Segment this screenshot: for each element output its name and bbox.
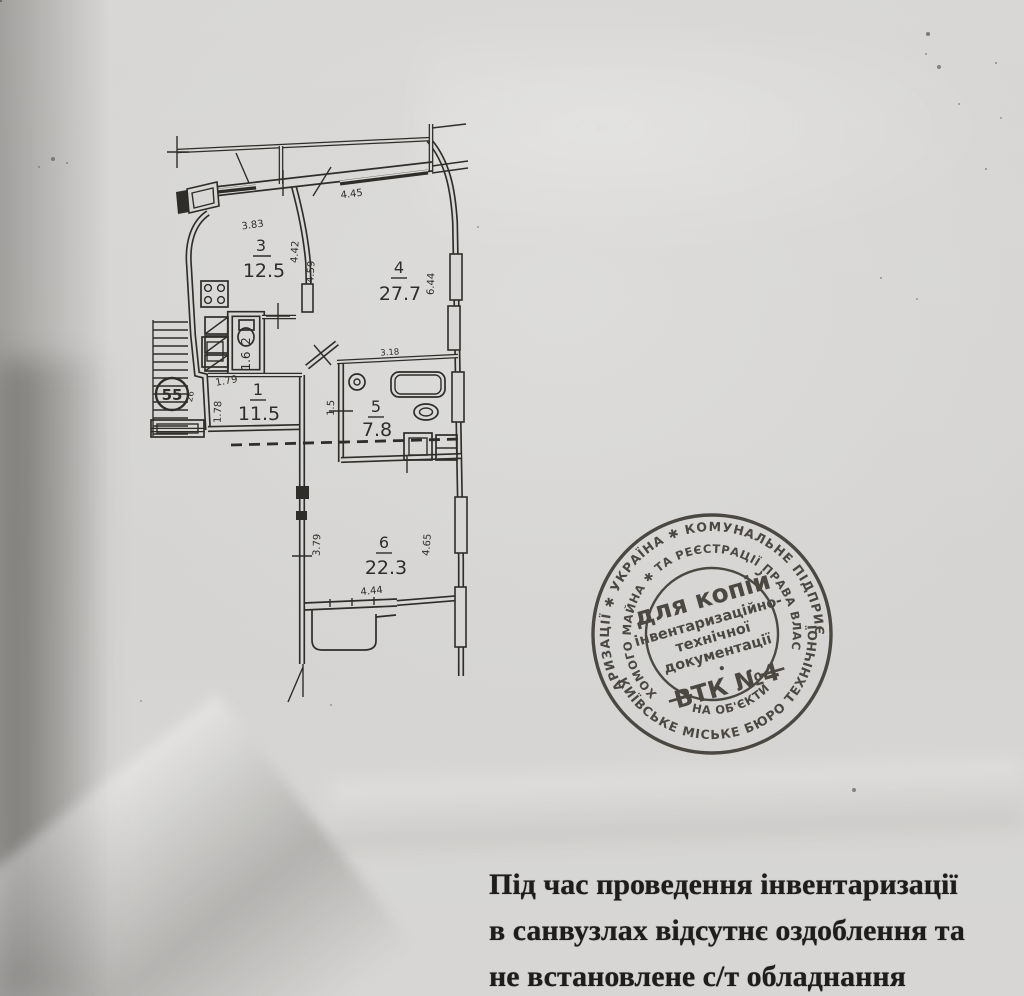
inventory-note: Під час проведення інвентаризації в санв… bbox=[489, 862, 965, 996]
scan-shadow-left-lower bbox=[0, 360, 150, 996]
note-line-3: не встановлене с/т обладнання bbox=[489, 954, 965, 996]
closet-icon bbox=[205, 317, 228, 371]
dim-top-wall: 4.45 bbox=[340, 188, 363, 202]
dim-room3-height: 4.42 bbox=[289, 240, 301, 263]
kitchen-window bbox=[176, 182, 219, 214]
scanned-document-page: 55 26 3 12.5 4 27.7 2 1.6 1 11.5 5 7.8 6… bbox=[0, 0, 1024, 996]
scan-shadow-left bbox=[0, 0, 110, 996]
bottom-window-band bbox=[304, 597, 397, 610]
floor-plan-drawing: 55 26 3 12.5 4 27.7 2 1.6 1 11.5 5 7.8 6… bbox=[140, 118, 485, 713]
paper-crease-middle bbox=[329, 758, 1024, 852]
paper-crease-bottom-left bbox=[0, 695, 414, 996]
dim-room6-left: 3.79 bbox=[312, 534, 324, 557]
room-5-area: 7.8 bbox=[362, 419, 392, 441]
apartment-number: 55 bbox=[162, 386, 183, 404]
stove-icon bbox=[201, 281, 228, 307]
dim-room4-bottom: 3.18 bbox=[380, 347, 400, 358]
scan-specks bbox=[0, 0, 2, 2]
dim-room4-height: 6.44 bbox=[426, 273, 438, 296]
room-4-area: 27.7 bbox=[379, 283, 421, 305]
room-1-area: 11.5 bbox=[238, 403, 280, 425]
note-line-1: Під час проведення інвентаризації bbox=[489, 862, 965, 908]
room-2-area: 1.6 bbox=[239, 351, 253, 370]
dimension-labels: 3.83 4.42 4.59 4.45 6.44 3.18 1.79 1.78 … bbox=[213, 188, 438, 598]
room-3-area: 12.5 bbox=[243, 260, 285, 282]
door-jamb bbox=[302, 284, 313, 312]
bti-round-stamp: ІНВЕНТАРИЗАЦІЇ ✱ УКРАЇНА ✱ КОМУНАЛЬНЕ ПІ… bbox=[584, 506, 840, 762]
dim-room3-width: 3.83 bbox=[241, 219, 265, 233]
room-3-number: 3 bbox=[256, 236, 266, 255]
dim-room6-bottom: 4.44 bbox=[360, 585, 383, 598]
apartment-number-badge: 55 26 bbox=[156, 378, 197, 410]
note-line-2: в санвузлах відсутнє оздоблення та bbox=[489, 908, 965, 954]
apartment-side-mark: 26 bbox=[185, 390, 197, 402]
dim-room6-right: 4.65 bbox=[421, 533, 434, 556]
room-5-number: 5 bbox=[371, 397, 381, 416]
room-6-number: 6 bbox=[379, 533, 389, 552]
room-4-number: 4 bbox=[394, 258, 404, 277]
dim-bath-width: 1.5 bbox=[326, 400, 338, 416]
room-2-number: 2 bbox=[239, 337, 253, 345]
room-6-area: 22.3 bbox=[365, 557, 407, 579]
room-1-number: 1 bbox=[253, 380, 263, 399]
bathtub-icon bbox=[391, 372, 445, 397]
dim-wall-34: 4.59 bbox=[305, 260, 317, 283]
paper-highlight-top bbox=[420, 40, 1024, 260]
dim-hall-door-b: 1.78 bbox=[213, 401, 225, 424]
